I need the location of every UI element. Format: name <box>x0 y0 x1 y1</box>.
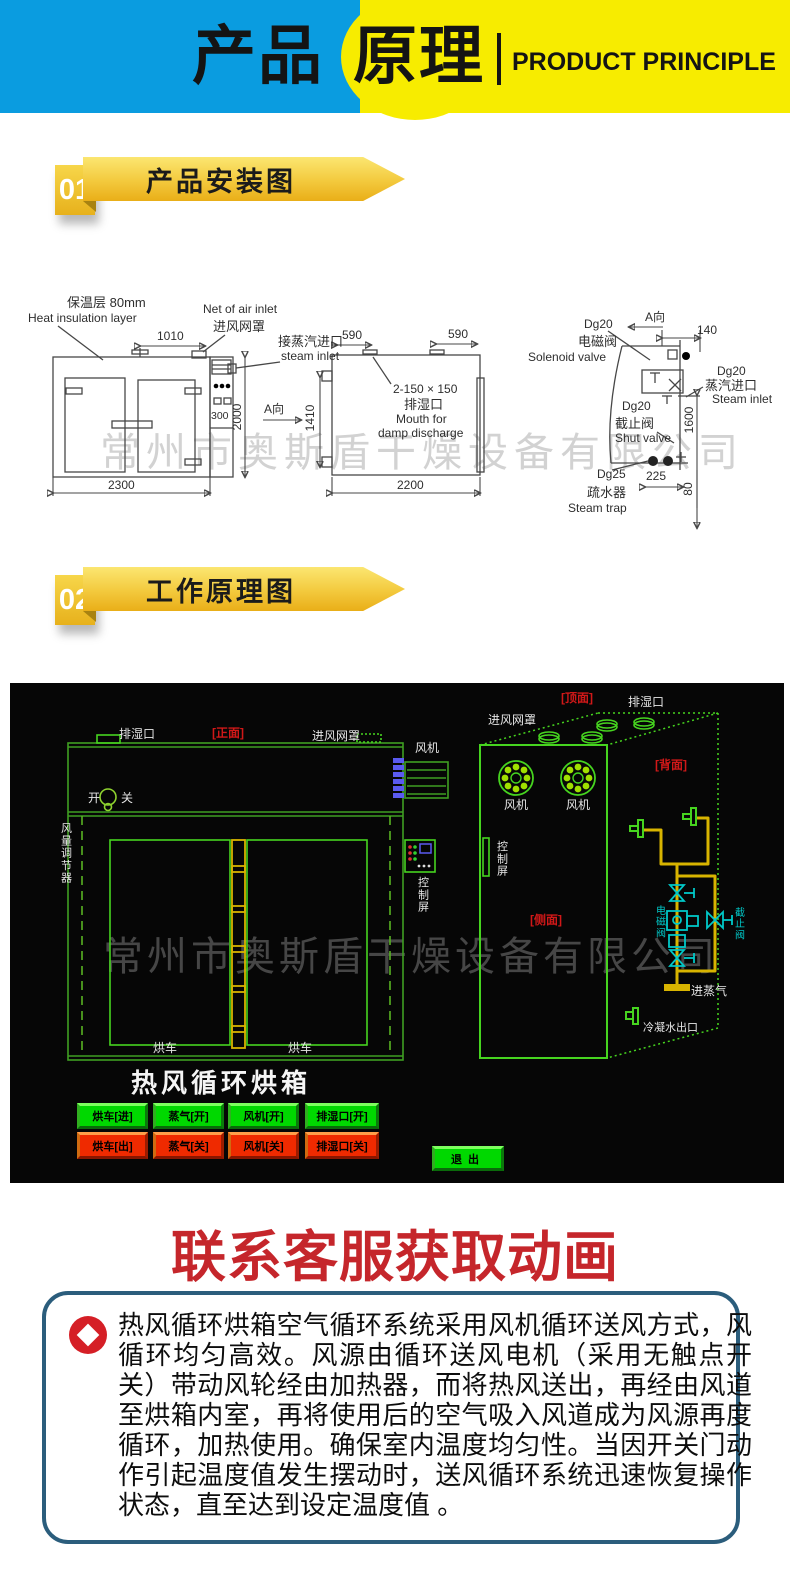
dg20-solenoid: Dg20 <box>584 317 613 331</box>
front-face-label: [正面] <box>212 726 244 740</box>
top-face-label: [顶面] <box>561 691 593 705</box>
dim-1600: 1600 <box>682 406 696 433</box>
steam-connect-label-en: steam inlet <box>281 349 340 363</box>
dim-80: 80 <box>681 482 695 496</box>
damp-label-en2: damp discharge <box>378 426 464 440</box>
net-label-en: Net of air inlet <box>203 302 278 316</box>
section-1-title: 产品安装图 <box>83 157 405 201</box>
diamond-bullet-icon <box>69 1316 107 1354</box>
section-1-ribbon: 01 产品安装图 <box>45 153 425 233</box>
solenoid-label-en: Solenoid valve <box>528 350 606 364</box>
dim-300: 300 <box>211 410 229 422</box>
fan-label-left: 风机 <box>504 798 528 812</box>
shut-valve-label-en: Shut valve <box>615 431 671 445</box>
fan-off-button[interactable]: 风机[关] <box>228 1132 299 1159</box>
dg20-shut: Dg20 <box>622 399 651 413</box>
dim-140: 140 <box>697 323 717 337</box>
shut-valve-label-cn: 截止阀 <box>615 416 654 431</box>
steam-in-label: 进蒸气 <box>691 983 727 998</box>
damp-close-button[interactable]: 排湿口[关] <box>305 1132 379 1159</box>
dim-1410: 1410 <box>303 404 317 431</box>
insulation-label-en: Heat insulation layer <box>28 311 137 325</box>
description-text: 热风循环烘箱空气循环系统采用风机循环送风方式，风循环均匀高效。风源由循环送风电机… <box>118 1310 752 1520</box>
back-face-label: [背面] <box>655 757 687 772</box>
ribbon-fold <box>83 201 96 212</box>
shut-valve-label: 截止阀 <box>735 906 745 941</box>
solenoid-label-cn: 电磁阀 <box>578 334 617 349</box>
steam-inlet-label-cn: 蒸汽进口 <box>705 378 757 393</box>
dim-2200: 2200 <box>397 478 424 492</box>
damp-outlet-label-front: 排湿口 <box>119 726 155 741</box>
dim-590-right: 590 <box>448 327 468 341</box>
section-2-title: 工作原理图 <box>83 567 405 611</box>
installation-diagram: 常州市奥斯盾干燥设备有限公司 <box>20 278 780 540</box>
cart-label-left: 烘车 <box>153 1040 177 1055</box>
control-screen-label-side: 控制屏 <box>497 839 508 878</box>
cad-title: 热风循环烘箱 <box>131 1068 311 1098</box>
a-direction-label-2: A向 <box>645 309 665 324</box>
damp-open-button[interactable]: 排湿口[开] <box>305 1103 379 1129</box>
damp-size-label: 2-150 × 150 <box>393 382 458 396</box>
air-regulator-label: 风量调节器 <box>61 822 72 884</box>
steam-trap-label-en: Steam trap <box>568 501 627 515</box>
header-title-cn-right: 原理 <box>353 21 485 91</box>
contact-service-title: 联系客服获取动画 <box>0 1212 790 1292</box>
net-label-cn: 进风网罩 <box>213 319 265 334</box>
dg20-steam: Dg20 <box>717 364 746 378</box>
dim-2000: 2000 <box>230 403 244 430</box>
exit-button[interactable]: 退出 <box>432 1146 504 1171</box>
steam-off-button[interactable]: 蒸气[关] <box>153 1132 224 1159</box>
dg25-label: Dg25 <box>597 467 626 481</box>
cart-in-button[interactable]: 烘车[进] <box>77 1103 148 1129</box>
steam-connect-label-cn: 接蒸汽进口 <box>278 334 343 349</box>
fan-label-right: 风机 <box>566 798 590 812</box>
dim-2300: 2300 <box>108 478 135 492</box>
dim-225: 225 <box>646 469 666 483</box>
section-2-ribbon: 02 工作原理图 <box>45 563 425 643</box>
steam-trap-label-cn: 疏水器 <box>587 485 626 500</box>
inlet-net-label-3d: 进风网罩 <box>488 713 536 727</box>
cart-label-right: 烘车 <box>288 1040 312 1055</box>
condensate-outlet-label: 冷凝水出口 <box>643 1020 698 1034</box>
side-face-label: [侧面] <box>530 912 562 927</box>
header-title-en: PRODUCT PRINCIPLE <box>512 48 776 77</box>
product-principle-page: 产品 原理 PRODUCT PRINCIPLE 01 产品安装图 常州市奥斯盾干… <box>0 0 790 1577</box>
watermark-text: 常州市奥斯盾干燥设备有限公司 <box>103 935 719 979</box>
solenoid-valve-label: 电磁阀 <box>656 904 666 939</box>
steam-inlet-flange <box>664 984 690 991</box>
dim-590-left: 590 <box>342 328 362 342</box>
header-title-cn-left: 产品 <box>192 21 324 91</box>
damp-label-cn: 排湿口 <box>404 397 443 412</box>
a-direction-label: A向 <box>264 401 284 416</box>
ribbon-fold <box>83 611 96 622</box>
damp-outlet-label-top: 排湿口 <box>628 694 664 709</box>
header-divider <box>497 33 501 85</box>
header-banner: 产品 原理 PRODUCT PRINCIPLE <box>0 0 790 113</box>
switch-off-label: 关 <box>121 791 133 805</box>
damp-label-en1: Mouth for <box>396 412 447 426</box>
cart-out-button[interactable]: 烘车[出] <box>77 1132 148 1159</box>
steam-on-button[interactable]: 蒸气[开] <box>153 1103 224 1129</box>
inlet-net-label-front: 进风网罩 <box>312 729 360 743</box>
insulation-label-cn: 保温层 80mm <box>67 295 146 310</box>
control-screen-label-front: 控制屏 <box>418 875 429 914</box>
description-box: 热风循环烘箱空气循环系统采用风机循环送风方式，风循环均匀高效。风源由循环送风电机… <box>42 1291 740 1544</box>
fan-on-button[interactable]: 风机[开] <box>228 1103 299 1129</box>
fan-label-front: 风机 <box>415 741 439 755</box>
dim-1010: 1010 <box>157 329 184 343</box>
steam-inlet-label-en: Steam inlet <box>712 392 773 406</box>
switch-on-label: 开 <box>88 791 100 805</box>
